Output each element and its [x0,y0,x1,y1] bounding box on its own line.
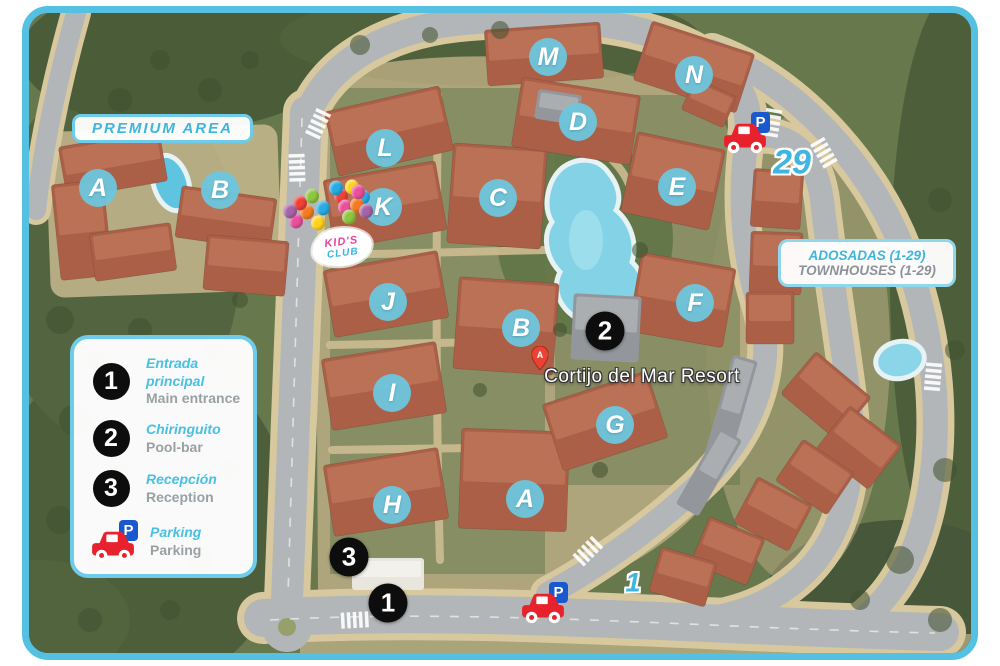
legend-layer: 1Entrada principalMain entrance2Chiringu… [22,6,978,660]
legend-item-parking: P ParkingParking [88,520,241,564]
map-frame: ABMNDLCEKJFBIGAH231291P P PREMIUM AREA A… [22,6,978,660]
parking-icon: P [88,520,138,564]
legend-subtitle: Parking [150,542,201,560]
legend-title: Chiringuito [146,421,221,439]
legend-title: Parking [150,524,201,542]
legend-item-1: 1Entrada principalMain entrance [88,355,241,408]
car-icon [88,526,138,564]
legend-subtitle: Main entrance [146,390,241,408]
legend-number-icon: 2 [88,420,134,457]
legend-item-3: 3RecepciónReception [88,470,241,507]
legend-circle-1: 1 [93,363,130,400]
resort-map-image: ABMNDLCEKJFBIGAH231291P P PREMIUM AREA A… [0,0,1000,666]
legend-circle-2: 2 [93,420,130,457]
legend-circle-3: 3 [93,470,130,507]
legend-number-icon: 1 [88,363,134,400]
legend-box: 1Entrada principalMain entrance2Chiringu… [70,335,257,578]
legend-number-icon: 3 [88,470,134,507]
legend-subtitle: Reception [146,489,217,507]
legend-title: Entrada principal [146,355,241,390]
legend-item-2: 2ChiringuitoPool-bar [88,420,241,457]
legend-title: Recepción [146,471,217,489]
legend-subtitle: Pool-bar [146,439,221,457]
